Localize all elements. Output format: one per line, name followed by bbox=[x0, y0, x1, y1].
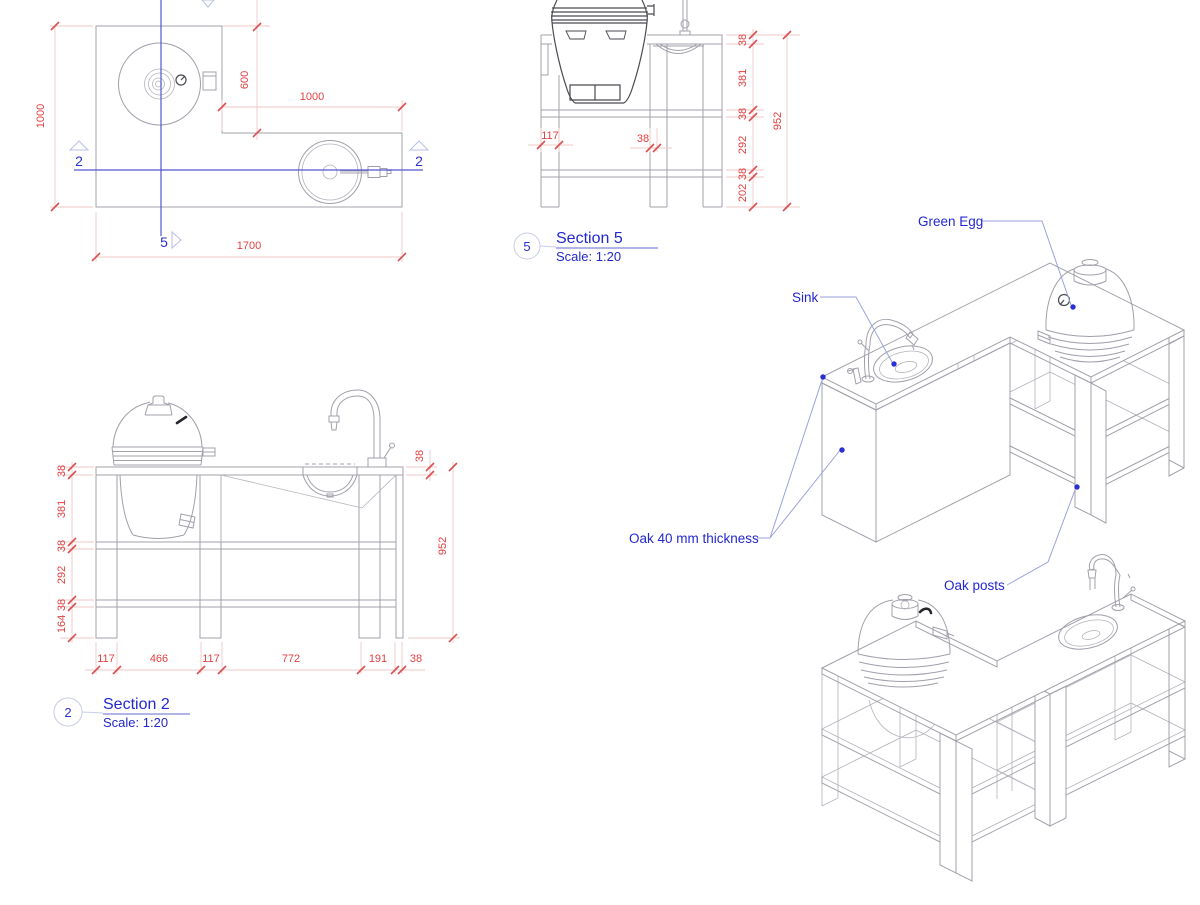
s2-dim-3: 292 bbox=[56, 566, 68, 584]
s2-egg-handle bbox=[177, 417, 186, 423]
s2-dim-0: 38 bbox=[56, 465, 68, 477]
s5-counter bbox=[541, 35, 722, 44]
s5-dim-leg: 117 bbox=[541, 130, 559, 142]
iso2-mid-post bbox=[1035, 686, 1066, 826]
plan-dim-right-width: 1000 bbox=[300, 91, 324, 103]
s5-dim-1: 381 bbox=[737, 69, 749, 87]
s2-bdim-5: 38 bbox=[410, 653, 422, 665]
s2-dim-counter-thk: 38 bbox=[414, 450, 426, 462]
section-marker-2-left: 2 bbox=[75, 153, 83, 169]
plan-counter-outline bbox=[96, 26, 402, 207]
plan-green-egg bbox=[119, 43, 217, 125]
s5-side-bracket bbox=[541, 35, 548, 75]
s2-bubble-number: 2 bbox=[64, 705, 71, 720]
s2-scale: Scale: 1:20 bbox=[103, 715, 168, 730]
s5-legs bbox=[541, 44, 722, 207]
section-marker-2-left-triangle bbox=[70, 141, 88, 150]
iso-view-bottom bbox=[822, 555, 1185, 881]
s2-dim-total: 952 bbox=[437, 537, 449, 555]
plan-dim-inner-depth: 600 bbox=[239, 71, 251, 89]
s5-bubble-number: 5 bbox=[523, 239, 530, 254]
s5-dim-0: 38 bbox=[737, 34, 749, 46]
label-green-egg: Green Egg bbox=[918, 214, 983, 229]
s5-sink-bowl bbox=[653, 44, 704, 54]
s2-bdim-2: 117 bbox=[202, 653, 220, 665]
s2-dim-2: 38 bbox=[56, 540, 68, 552]
leader-dot-oak-edge bbox=[820, 374, 825, 379]
plan-sink bbox=[299, 141, 392, 204]
s2-shelves bbox=[96, 542, 396, 607]
plan-dimension-lines bbox=[50, 0, 402, 262]
iso1-front-post bbox=[1075, 375, 1106, 523]
s2-legs bbox=[96, 475, 380, 638]
label-oak-thickness: Oak 40 mm thickness bbox=[629, 531, 759, 546]
leader-dot-green-egg bbox=[1070, 304, 1075, 309]
leader-dot-oak-panel bbox=[839, 447, 844, 452]
s5-title-leader bbox=[540, 246, 556, 247]
plan-view: 2 2 5 1000 600 1000 1700 bbox=[35, 0, 428, 262]
s5-faucet bbox=[680, 0, 690, 35]
section-marker-2-right: 2 bbox=[415, 153, 423, 169]
iso2-right-shelf-edges bbox=[1050, 682, 1185, 803]
section-marker-2-right-triangle bbox=[410, 141, 428, 150]
iso2-front-left-post bbox=[940, 733, 972, 881]
iso1-right-post bbox=[1169, 328, 1184, 476]
section5-view: 117 38 38 381 38 292 38 202 952 5 Sectio… bbox=[514, 0, 800, 264]
s5-dim-4: 38 bbox=[737, 168, 749, 180]
drawing-canvas: 2 2 5 1000 600 1000 1700 bbox=[0, 0, 1200, 900]
s5-dim-3: 292 bbox=[737, 136, 749, 154]
s5-dim-2: 38 bbox=[737, 108, 749, 120]
s5-dim-5: 202 bbox=[737, 184, 749, 202]
iso2-egg-handle bbox=[920, 609, 931, 613]
s5-title: Section 5 bbox=[556, 230, 623, 247]
leader-dot-sink bbox=[891, 361, 896, 366]
section-marker-5-triangle bbox=[172, 232, 181, 248]
label-sink: Sink bbox=[792, 290, 819, 305]
plan-dim-overall-width: 1700 bbox=[237, 240, 261, 252]
s2-dim-4: 38 bbox=[56, 599, 68, 611]
iso-view-top bbox=[822, 260, 1184, 543]
section-marker-5: 5 bbox=[160, 234, 168, 250]
s2-bdim-0: 117 bbox=[97, 653, 115, 665]
s2-title: Section 2 bbox=[103, 696, 170, 713]
s5-dim-total: 952 bbox=[772, 112, 784, 130]
s2-bdim-3: 772 bbox=[282, 653, 300, 665]
s2-title-leader bbox=[82, 712, 103, 713]
s2-dim-5: 164 bbox=[56, 615, 68, 633]
s5-green-egg-section bbox=[551, 0, 654, 103]
s2-bdim-4: 191 bbox=[369, 653, 387, 665]
cad-drawing-sheet: 2 2 5 1000 600 1000 1700 bbox=[0, 0, 1200, 900]
s2-sink bbox=[303, 464, 357, 497]
section-marker-top-triangle bbox=[202, 0, 214, 7]
s2-bdim-1: 466 bbox=[150, 653, 168, 665]
s5-dim-shelf: 38 bbox=[637, 133, 649, 145]
s2-right-dim-lines bbox=[406, 450, 460, 643]
iso2-counter-top bbox=[822, 594, 1185, 735]
s2-counter bbox=[96, 467, 403, 638]
s5-right-dim-ticks bbox=[749, 31, 791, 211]
iso2-right-post bbox=[1169, 619, 1185, 767]
leader-dot-oak-post bbox=[1074, 484, 1079, 489]
iso2-left-shelf-edges bbox=[822, 729, 1050, 850]
section2-view: 38 381 38 292 38 164 38 952 117 466 117 … bbox=[54, 390, 460, 730]
s2-faucet bbox=[329, 390, 395, 467]
label-oak-posts: Oak posts bbox=[944, 578, 1005, 593]
plan-dimension-ticks bbox=[51, 22, 406, 261]
s5-shelves bbox=[541, 110, 722, 177]
leader-oak-posts bbox=[1007, 490, 1075, 585]
plan-dim-depth: 1000 bbox=[35, 104, 47, 128]
s5-scale: Scale: 1:20 bbox=[556, 249, 621, 264]
s2-dim-1: 381 bbox=[56, 500, 68, 518]
